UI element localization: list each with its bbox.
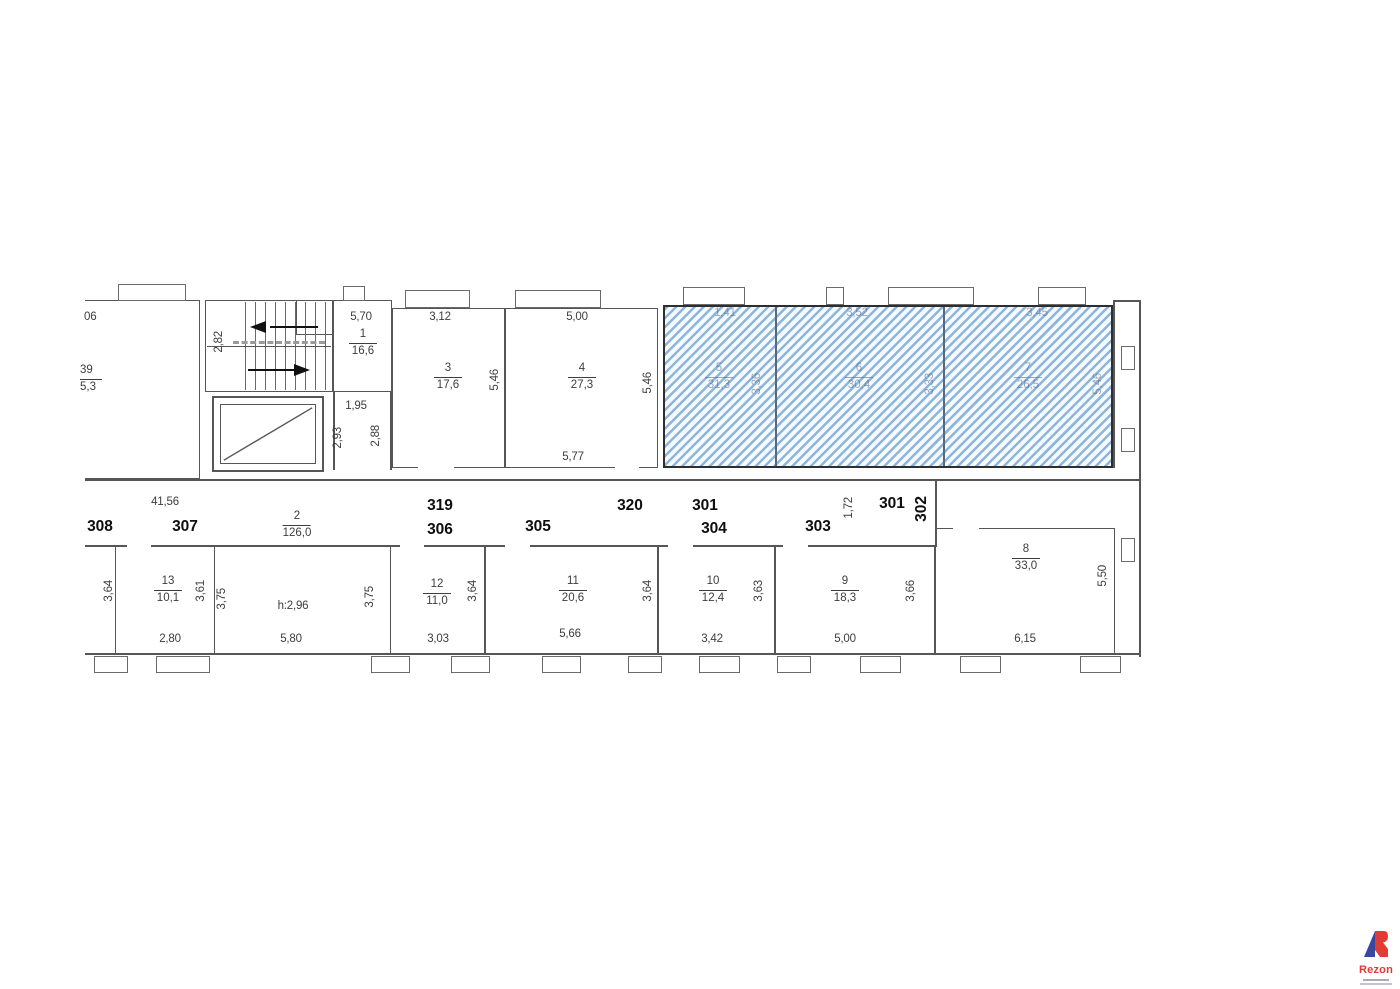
room-7-label: 7 26,5 (1014, 362, 1042, 393)
dim-room6-top: 3,52 (846, 307, 868, 319)
label-divider (283, 525, 311, 526)
room-39-number: 39 (80, 364, 102, 378)
wall (1115, 479, 1141, 481)
window (1080, 656, 1121, 673)
dim-partial-top: 06 (84, 311, 96, 323)
window (860, 656, 901, 673)
room-12-number: 12 (423, 578, 451, 592)
dim-room5-right: 3,36 (751, 373, 763, 395)
corridor-north-wall (85, 479, 1115, 481)
door-gap (783, 541, 808, 550)
window (1038, 287, 1086, 305)
room-8-area: 33,0 (1012, 560, 1040, 574)
window (683, 287, 745, 305)
room-3-number: 3 (434, 362, 462, 376)
facade-notch (1121, 346, 1135, 370)
door-gap (953, 524, 979, 533)
room-5-number: 5 (705, 362, 733, 376)
rezon-logo-mark-icon (1363, 930, 1389, 958)
room-5-area: 31,3 (705, 379, 733, 393)
room-5-label: 5 31,3 (705, 362, 733, 393)
facade-notch (1121, 428, 1135, 452)
bottom-outer-wall (85, 653, 1141, 655)
window (451, 656, 490, 673)
label-divider (1012, 558, 1040, 559)
dim-room7-right: 5,46 (1092, 373, 1104, 395)
stair-arrow-up-shaft (270, 326, 318, 328)
window (405, 290, 470, 308)
unit-label-307: 307 (172, 518, 198, 536)
dim-corridor-172: 1,72 (843, 497, 855, 519)
room-1-label: 1 16,6 (349, 328, 377, 359)
window (888, 287, 974, 305)
room-11-area: 20,6 (559, 592, 587, 606)
dim-room2-bottom: 5,80 (280, 633, 302, 645)
room-39-area: 5,3 (80, 381, 102, 395)
logo-tagline-line (1363, 979, 1389, 981)
floor-plan-canvas: 06 39 5,3 1 16,6 3 17,6 4 27,3 5 31,3 6 … (0, 0, 1400, 989)
room-1-number: 1 (349, 328, 377, 342)
room-1-area: 16,6 (349, 345, 377, 359)
elevator-diagonal (221, 405, 315, 463)
unit-label-303: 303 (805, 518, 831, 536)
room-7-area: 26,5 (1014, 379, 1042, 393)
room-3-area: 17,6 (434, 379, 462, 393)
room-10-number: 10 (699, 575, 727, 589)
unit-label-304: 304 (701, 520, 727, 538)
room-8-label: 8 33,0 (1012, 543, 1040, 574)
door-gap (418, 462, 454, 472)
room-2-area: 126,0 (283, 527, 312, 541)
window (371, 656, 410, 673)
label-divider (559, 590, 587, 591)
stair-arrow-up-icon (250, 321, 266, 333)
label-divider (705, 377, 733, 378)
room-9-number: 9 (831, 575, 859, 589)
wall (1113, 300, 1141, 302)
room-6-number: 6 (845, 362, 873, 376)
stair-rail-dashed (233, 341, 325, 344)
window (777, 656, 811, 673)
room-9-label: 9 18,3 (831, 575, 859, 606)
room-10-label: 10 12,4 (699, 575, 727, 606)
logo-tagline-line (1360, 983, 1392, 985)
dim-lobby-left: 2,93 (332, 427, 344, 449)
window (343, 286, 365, 301)
unit-label-301b: 301 (879, 495, 905, 513)
dim-room5-top: 1,41 (714, 307, 736, 319)
dim-room9-right: 3,66 (905, 580, 917, 602)
dim-stair-width: 2,82 (213, 331, 225, 353)
label-divider (568, 377, 596, 378)
unit-label-305: 305 (525, 518, 551, 536)
room-6-label: 6 30,4 (845, 362, 873, 393)
room-2-number: 2 (283, 510, 312, 524)
unit-label-302: 302 (913, 496, 931, 522)
room-11-label: 11 20,6 (559, 575, 587, 606)
window (960, 656, 1001, 673)
window (118, 284, 186, 301)
label-divider (831, 590, 859, 591)
dim-room3-top: 3,12 (429, 311, 451, 323)
door-gap (400, 541, 424, 550)
stair-arrow-down-shaft (248, 369, 296, 371)
unit-label-306: 306 (427, 521, 453, 539)
dim-corridor-right: 3,75 (364, 586, 376, 608)
dim-room4-bottom: 5,77 (562, 451, 584, 463)
label-divider (699, 590, 727, 591)
label-divider (1014, 377, 1042, 378)
room-12-label: 12 11,0 (423, 578, 451, 609)
room-4-number: 4 (568, 362, 596, 376)
dim-lobby-width: 1,95 (345, 400, 367, 412)
dim-room8-bottom: 6,15 (1014, 633, 1036, 645)
rezon-logo: Rezon (1354, 930, 1398, 985)
dim-room13-right: 3,61 (195, 580, 207, 602)
room-13-number: 13 (154, 575, 182, 589)
room-11-number: 11 (559, 575, 587, 589)
label-divider (80, 379, 102, 380)
window (542, 656, 581, 673)
room-4-area: 27,3 (568, 379, 596, 393)
unit-label-319: 319 (427, 497, 453, 515)
room-9-area: 18,3 (831, 592, 859, 606)
unit-label-320: 320 (617, 497, 643, 515)
wall (1113, 300, 1115, 468)
door-gap (505, 541, 530, 550)
window (156, 656, 210, 673)
room-6-area: 30,4 (845, 379, 873, 393)
dim-room9-bottom: 5,00 (834, 633, 856, 645)
dim-corridor-length: 41,56 (151, 496, 179, 508)
window (515, 290, 601, 308)
room-3-label: 3 17,6 (434, 362, 462, 393)
dim-room7-top: 3,45 (1026, 307, 1048, 319)
room-13-label: 13 10,1 (154, 575, 182, 606)
room-39-outline (85, 300, 200, 479)
room-12-area: 11,0 (423, 595, 451, 609)
dim-room13-left: 3,64 (103, 580, 115, 602)
dim-room10-right: 3,63 (753, 580, 765, 602)
dim-room6-right: 3,33 (924, 373, 936, 395)
dim-lobby-right: 2,88 (370, 425, 382, 447)
door-gap (668, 541, 693, 550)
facade-notch (1121, 538, 1135, 562)
stair-landing-line (207, 346, 331, 347)
dim-room4-top: 5,00 (566, 311, 588, 323)
label-divider (349, 343, 377, 344)
label-divider (423, 593, 451, 594)
dim-ceiling-height: h:2,96 (278, 600, 309, 612)
dim-room11-right: 3,64 (642, 580, 654, 602)
dim-room10-bottom: 3,42 (701, 633, 723, 645)
window (628, 656, 662, 673)
dim-room8-right: 5,50 (1097, 565, 1109, 587)
room-8-number: 8 (1012, 543, 1040, 557)
door-gap (127, 541, 151, 550)
elevator-car (220, 404, 316, 464)
hatch-room-divider (775, 307, 777, 466)
dim-room1-top: 5,70 (350, 311, 372, 323)
hatch-room-divider (943, 307, 945, 466)
dim-room12-right: 3,64 (467, 580, 479, 602)
label-divider (434, 377, 462, 378)
dim-room13-bottom: 2,80 (159, 633, 181, 645)
elevator-shaft (212, 396, 324, 472)
room-39-label: 39 5,3 (80, 364, 102, 395)
room-10-area: 12,4 (699, 592, 727, 606)
room-7-number: 7 (1014, 362, 1042, 376)
dim-room3-right: 5,46 (489, 369, 501, 391)
dim-room4-right: 5,46 (642, 372, 654, 394)
window (699, 656, 740, 673)
stair-arrow-down-icon (294, 364, 310, 376)
window (826, 287, 844, 305)
dim-corridor-left: 3,75 (216, 588, 228, 610)
brand-name: Rezon (1354, 964, 1398, 976)
dim-room12-bottom: 3,03 (427, 633, 449, 645)
window (94, 656, 128, 673)
label-divider (154, 590, 182, 591)
unit-label-301a: 301 (692, 497, 718, 515)
unit-label-308: 308 (87, 518, 113, 536)
room-13-area: 10,1 (154, 592, 182, 606)
dim-room11-bottom: 5,66 (559, 628, 581, 640)
door-gap (615, 462, 639, 472)
room-2-label: 2 126,0 (283, 510, 312, 541)
room-4-label: 4 27,3 (568, 362, 596, 393)
label-divider (845, 377, 873, 378)
